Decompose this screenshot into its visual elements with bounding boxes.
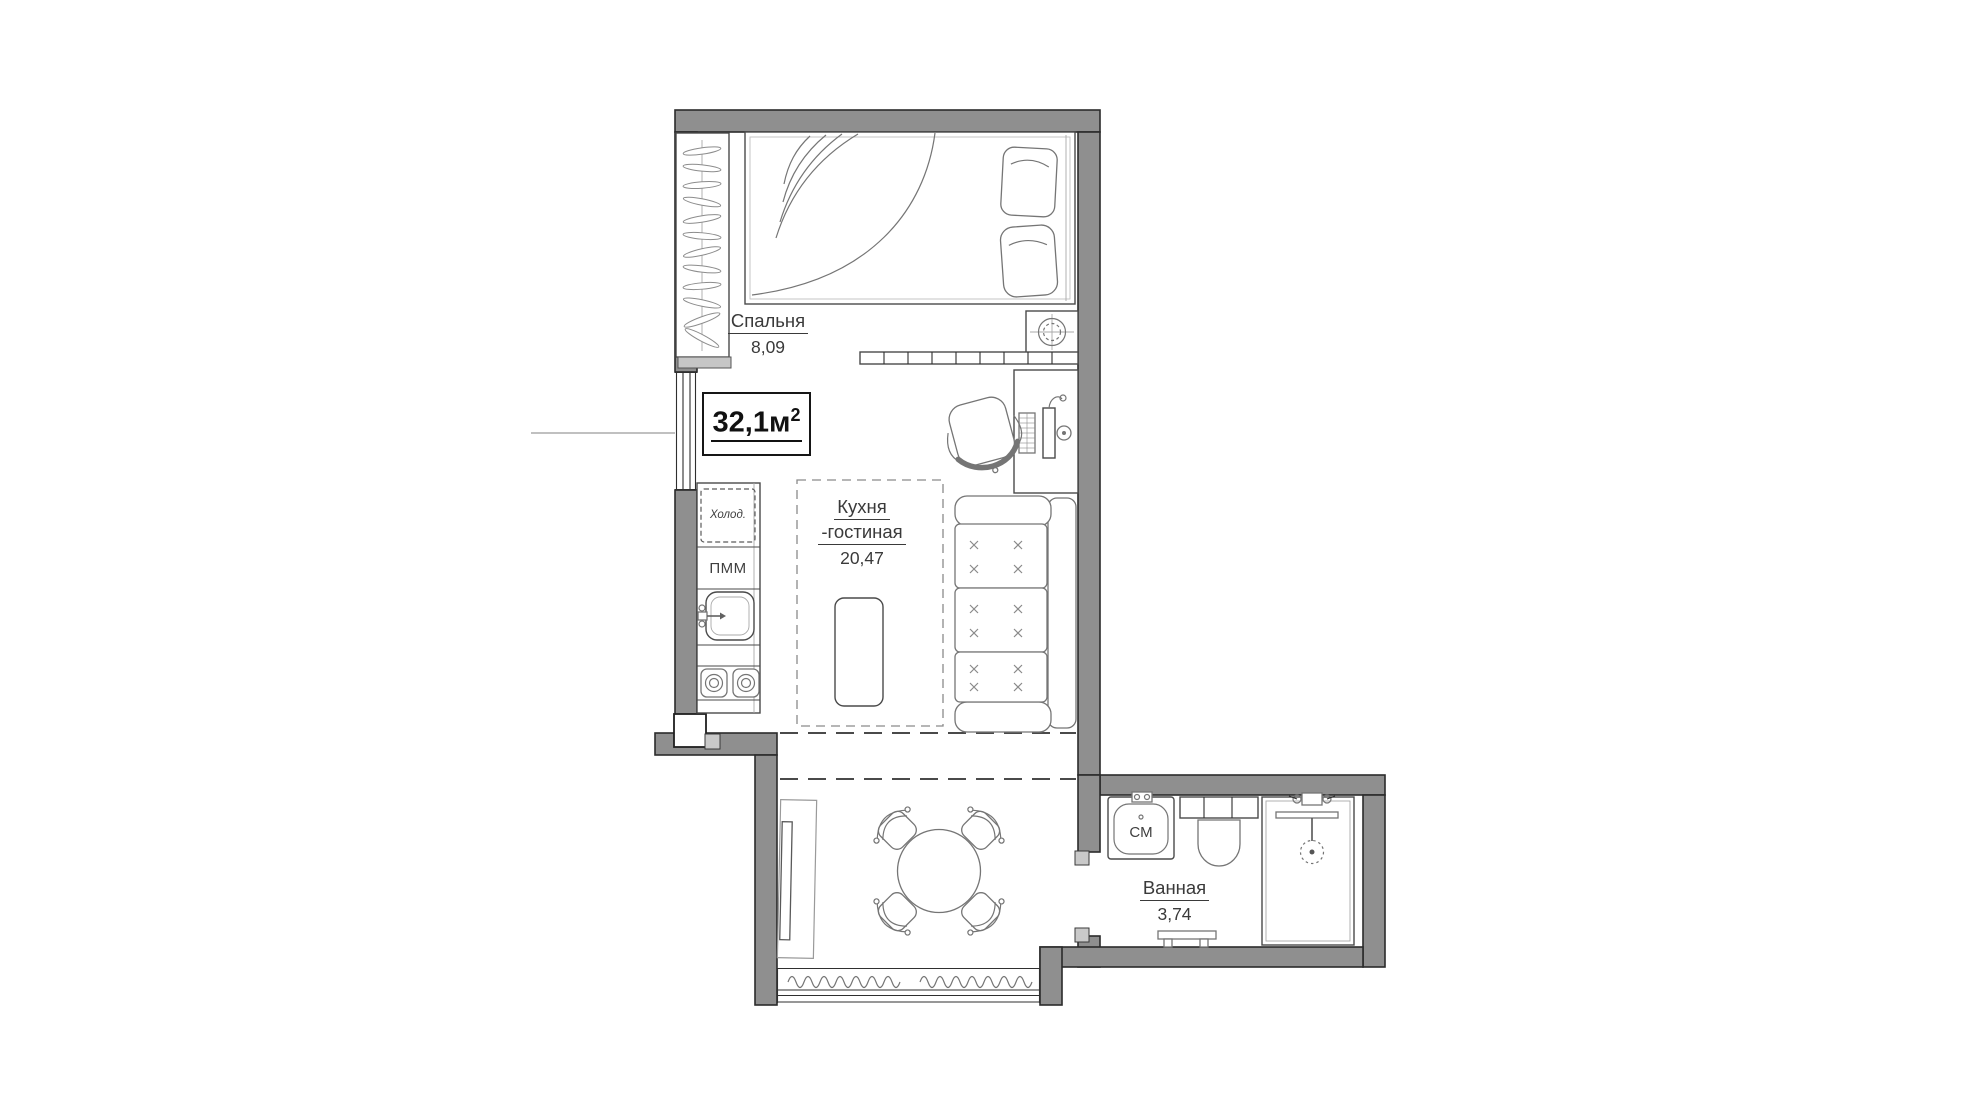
kitchen-living-area: 20,47 — [792, 549, 932, 568]
tv-console — [777, 800, 816, 959]
monitor — [1043, 408, 1055, 458]
bath-bench — [1158, 931, 1216, 947]
kitchen-living-name: Кухня — [834, 497, 890, 520]
pillow — [1000, 147, 1057, 218]
wardrobe-base — [678, 357, 731, 368]
dining-set — [868, 801, 1011, 942]
wall-notch — [674, 714, 706, 747]
fridge-label: Холод. — [701, 509, 755, 521]
toilet — [1180, 797, 1258, 866]
bedroom-label: Спальня 8,09 — [698, 311, 838, 357]
bedroom-area: 8,09 — [698, 338, 838, 357]
window-bottom — [777, 968, 1040, 1003]
bathroom-area: 3,74 — [1102, 905, 1247, 924]
bathroom-label: Ванная 3,74 — [1102, 878, 1247, 924]
sofa — [955, 496, 1076, 732]
ventilation-fan — [1026, 311, 1078, 353]
coffee-table — [835, 598, 883, 706]
zone-divider-lines — [780, 733, 1076, 779]
desk — [1014, 370, 1078, 493]
bedroom-name: Спальня — [728, 311, 808, 334]
floor-plan-drawing — [0, 0, 1980, 1114]
dishwasher-label: ПММ — [699, 560, 757, 577]
washing-machine-label: СМ — [1119, 824, 1163, 841]
window-left — [675, 372, 697, 490]
floor-plan: 32,1м2 Спальня 8,09 Кухня -гостиная 20,4… — [0, 0, 1980, 1114]
bed — [745, 132, 1075, 304]
dining-table — [898, 830, 981, 913]
kitchen-living-label: Кухня -гостиная 20,47 — [792, 497, 932, 568]
bathroom-name: Ванная — [1140, 878, 1209, 901]
shelf-unit — [860, 352, 1078, 364]
sink — [698, 592, 754, 640]
shower — [1262, 793, 1354, 945]
total-area-value: 32,1м2 — [711, 406, 803, 442]
total-area-box: 32,1м2 — [702, 392, 811, 456]
kitchen-living-name2: -гостиная — [818, 522, 905, 545]
pillow — [1000, 224, 1059, 298]
